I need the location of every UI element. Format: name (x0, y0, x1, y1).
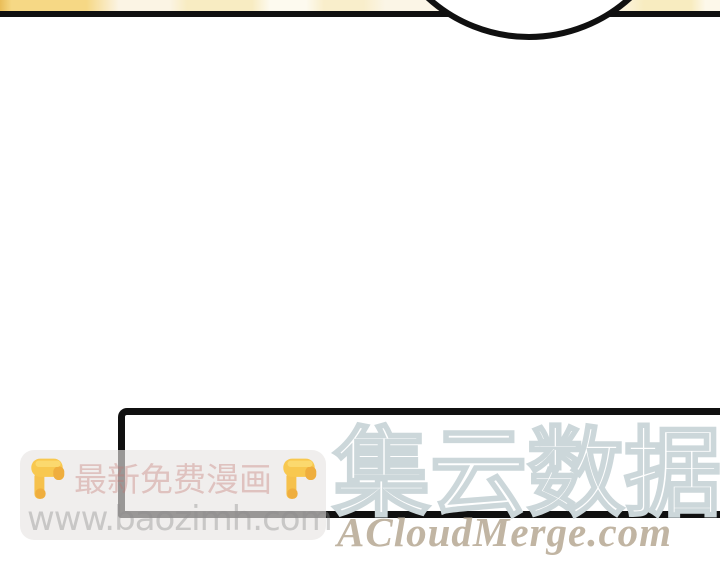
site-watermark-promo-text: 最新免费漫画 (74, 463, 272, 496)
pointing-down-finger-icon (280, 457, 318, 501)
brand-watermark-domain: ACloudMerge.com (337, 512, 672, 553)
site-watermark-promo-row: 最新免费漫画 (28, 456, 318, 502)
site-watermark-bubble: 最新免费漫画 www.baozimh.com (20, 450, 326, 540)
pointing-down-finger-icon (28, 457, 66, 501)
site-watermark-url: www.baozimh.com (27, 502, 332, 536)
